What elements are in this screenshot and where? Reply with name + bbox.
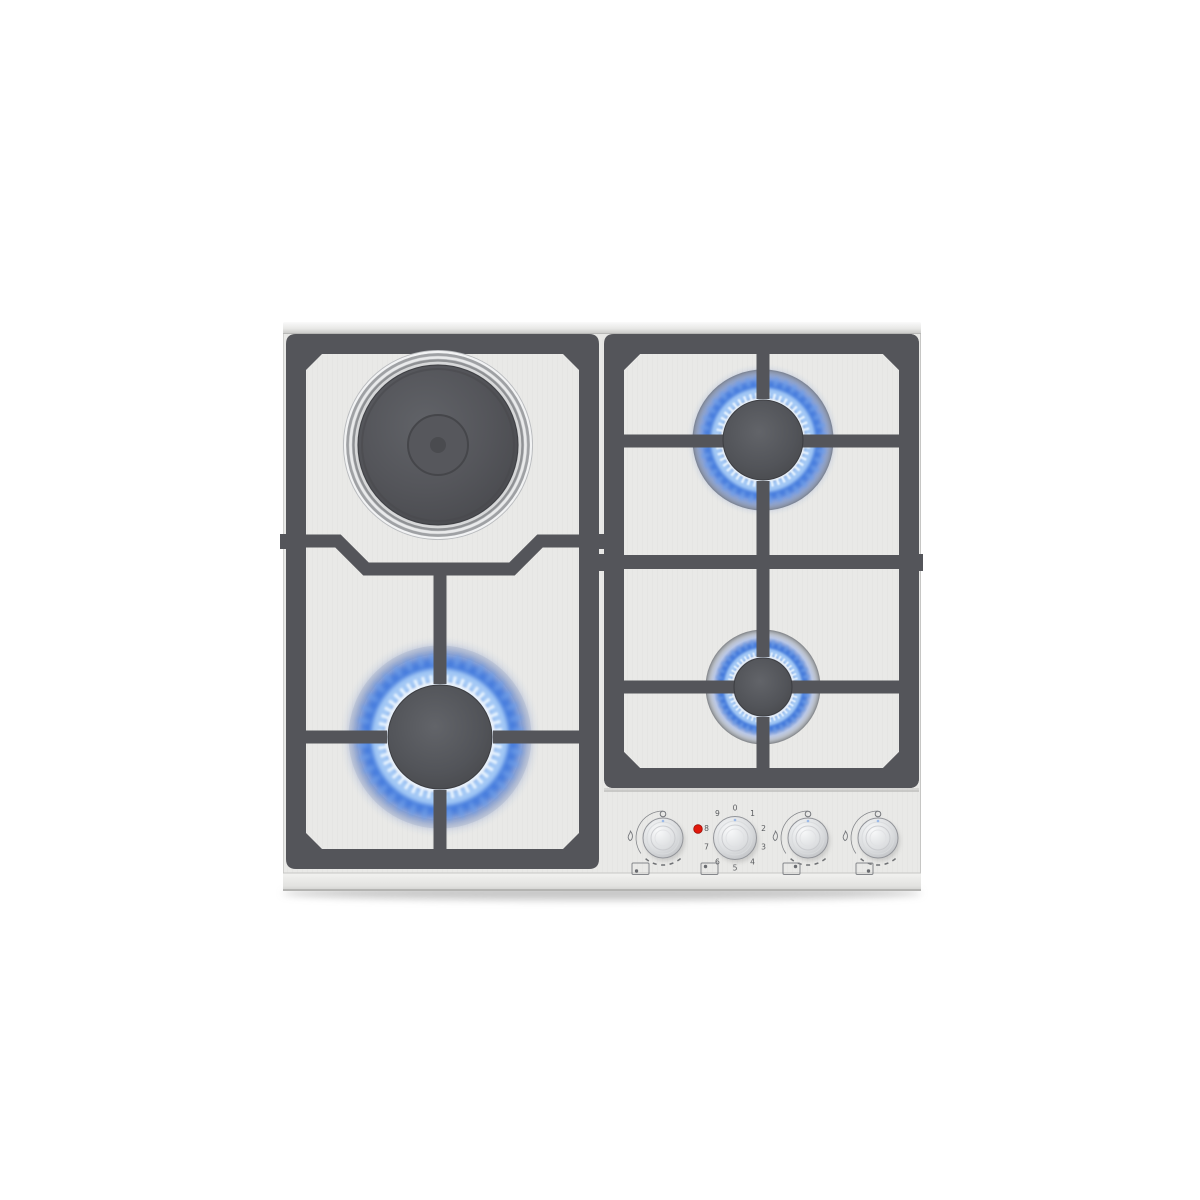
electric-hotplate [343,350,533,540]
dial-number-4: 4 [750,858,755,867]
left-grate-tab-right [597,534,604,549]
dial-number-5: 5 [733,864,738,873]
dial-number-6: 6 [715,858,720,867]
back-right-burner-cap [723,400,803,480]
dial-number-2: 2 [761,824,766,833]
knob-glint [807,820,810,823]
knob-glint [662,820,665,823]
dial-number-3: 3 [761,843,766,852]
product-photo-cooktop: 0 1 2 3 4 5 6 7 8 9 [0,0,1200,1200]
dial-number-8: 8 [704,824,709,833]
dial-number-0: 0 [733,804,738,813]
panel-shadow [604,788,919,792]
left-grate-tab-left [280,534,287,549]
back-edge [283,322,921,334]
power-indicator-led [694,825,703,834]
front-left-burner-cap [388,685,492,789]
front-right-burner-cap [734,658,792,716]
knob-glint [734,819,737,822]
dial-number-1: 1 [750,809,755,818]
dial-number-7: 7 [704,843,709,852]
knob-glint [877,820,880,823]
front-edge [283,873,921,891]
dial-number-9: 9 [715,809,720,818]
